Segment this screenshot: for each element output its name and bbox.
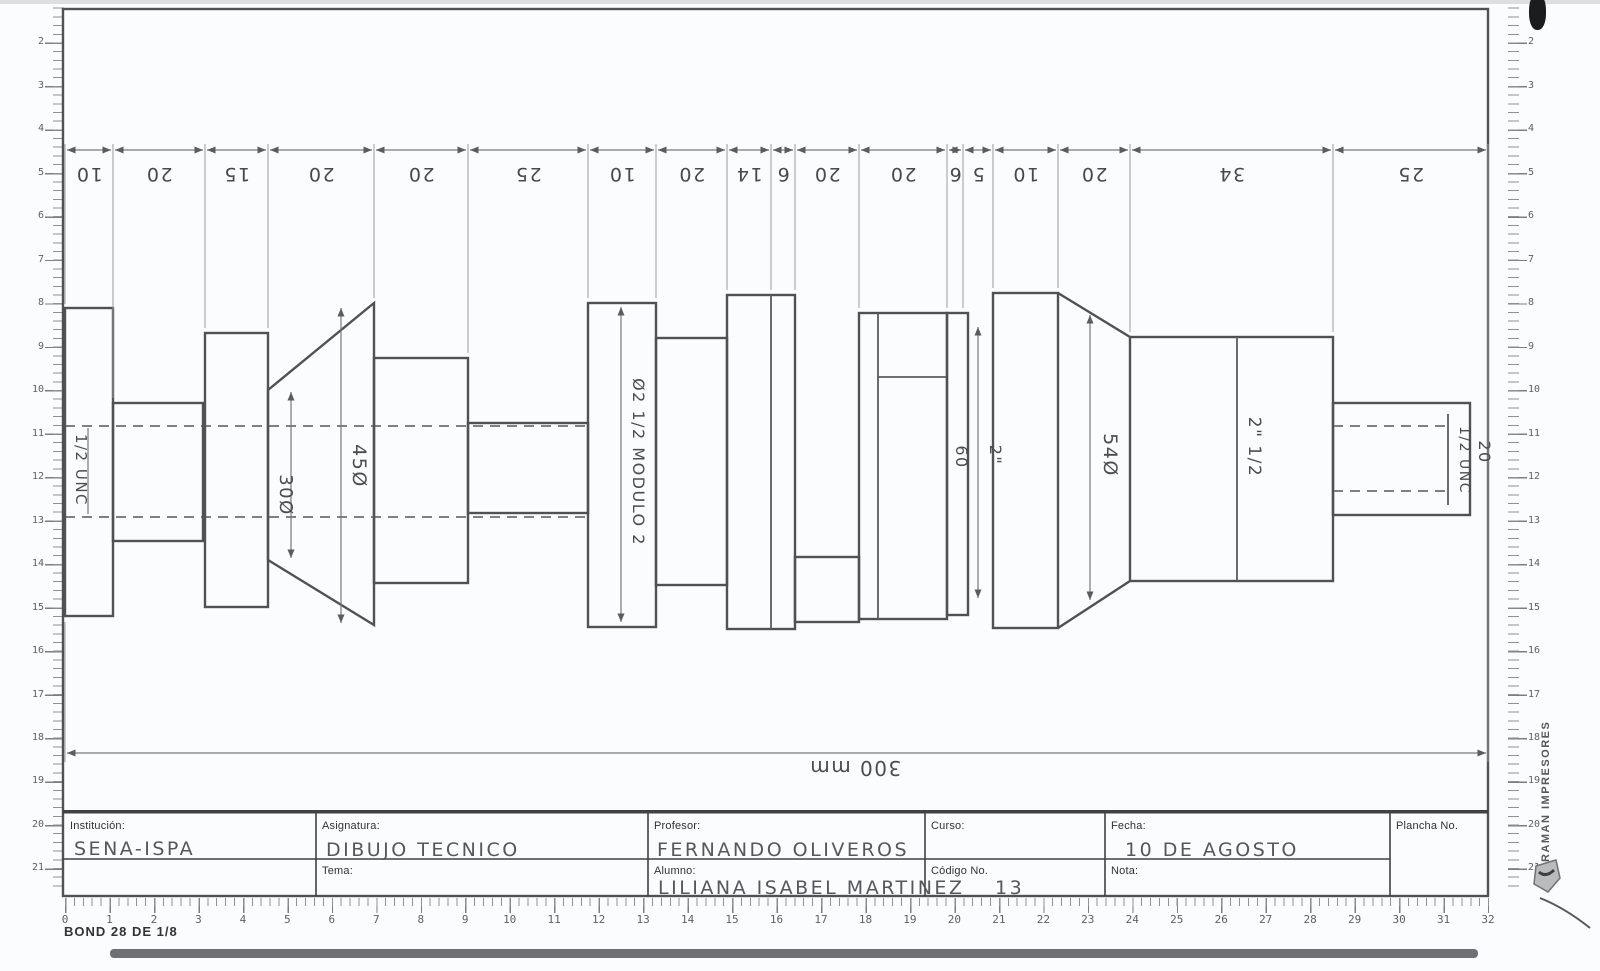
chain-dimension-label: 6 [776,163,790,185]
paper-type-note: BOND 28 DE 1/8 [64,924,178,939]
drawing-labels: 1/2 UNC 30Ø 45Ø Ø2 1/2 MODULO 2 60 2" 54… [72,378,1494,546]
overall-dimension-label: 300 mm [809,756,902,780]
profesor-label: Profesor: [654,820,700,832]
scan-blob-artifact [1529,0,1546,30]
printer-logo-icon [1530,856,1564,896]
len60-label: 60 [952,445,971,468]
chain-dimension-label: 10 [1012,163,1039,185]
chain-dimension-label: 20 [407,163,434,185]
fecha-value: 10 DE AGOSTO [1125,839,1299,861]
chain-dimension-label: 25 [1397,163,1424,185]
profesor-value: FERNANDO OLIVEROS [657,839,909,861]
scan-bottom-edge [110,949,1478,958]
thread-right-label: 1/2 UNC [1456,426,1472,494]
chain-dimension-label: 20 [813,163,840,185]
thread-left-label: 1/2 UNC [72,434,90,506]
flange-section [727,295,795,629]
gear-label: Ø2 1/2 MODULO 2 [629,378,648,546]
asignatura-value: DIBUJO TECNICO [326,839,520,861]
chain-dimension-label: 20 [145,163,172,185]
chain-dimension-label: 10 [608,163,635,185]
alumno-label: Alumno: [654,865,696,877]
institucion-label: Institución: [70,820,125,832]
dia30-label: 30Ø [275,474,296,516]
codigo-value: 13 [995,877,1024,899]
len20-label: 20 [1475,440,1494,463]
chain-dimension-label: 15 [223,163,250,185]
chain-dimension-label: 20 [678,163,705,185]
alumno-value: LILIANA ISABEL MARTINEZ [658,877,964,899]
title-block-top-border [63,810,1488,814]
curso-label: Curso: [931,820,965,832]
thread-lines [65,414,1448,517]
dia54-label: 54Ø [1099,433,1121,477]
chain-dimension-label: 20 [1080,163,1107,185]
dimension-chain: 102015202025102014620206510203425 [65,144,1488,762]
plancha-label: Plancha No. [1396,820,1458,832]
tema-label: Tema: [322,865,353,877]
dia45-label: 45Ø [348,444,370,488]
scan-artifacts [0,0,1600,928]
asignatura-label: Asignatura: [322,820,380,832]
chain-dimension-label: 25 [514,163,541,185]
printer-mark-text: RAMAN IMPRESORES [1540,721,1552,862]
scanned-sheet: 123456789101112131415161718192021 123456… [0,0,1600,971]
chain-dimension-label: 6 [948,163,962,185]
drawing-frame [63,9,1488,896]
taper-top [1058,293,1130,337]
taper-bottom [1058,581,1130,628]
chain-dimension-label: 20 [307,163,334,185]
institucion-value: SENA-ISPA [74,838,195,860]
chain-dimension-label: 14 [735,163,762,185]
pencil-stray-mark [1540,898,1590,928]
dia2half-label: 2" 1/2 [1244,417,1264,477]
codigo-label: Código No. [931,865,988,877]
chain-dimension-label: 20 [889,163,916,185]
title-block: Institución: SENA-ISPA Asignatura: DIBUJ… [63,813,1458,899]
overall-dimension: 300 mm [65,622,1486,780]
dia2in-label: 2" [986,445,1005,466]
thread-end-right [1333,403,1470,515]
nota-label: Nota: [1111,865,1138,877]
technical-drawing: 102015202025102014620206510203425 1/2 UN… [0,0,1600,971]
scan-top-edge [0,0,1600,4]
chain-dimension-label: 34 [1218,163,1245,185]
chain-dimension-label: 10 [75,163,102,185]
fecha-label: Fecha: [1111,820,1146,832]
chain-dimension-label: 5 [971,163,985,185]
